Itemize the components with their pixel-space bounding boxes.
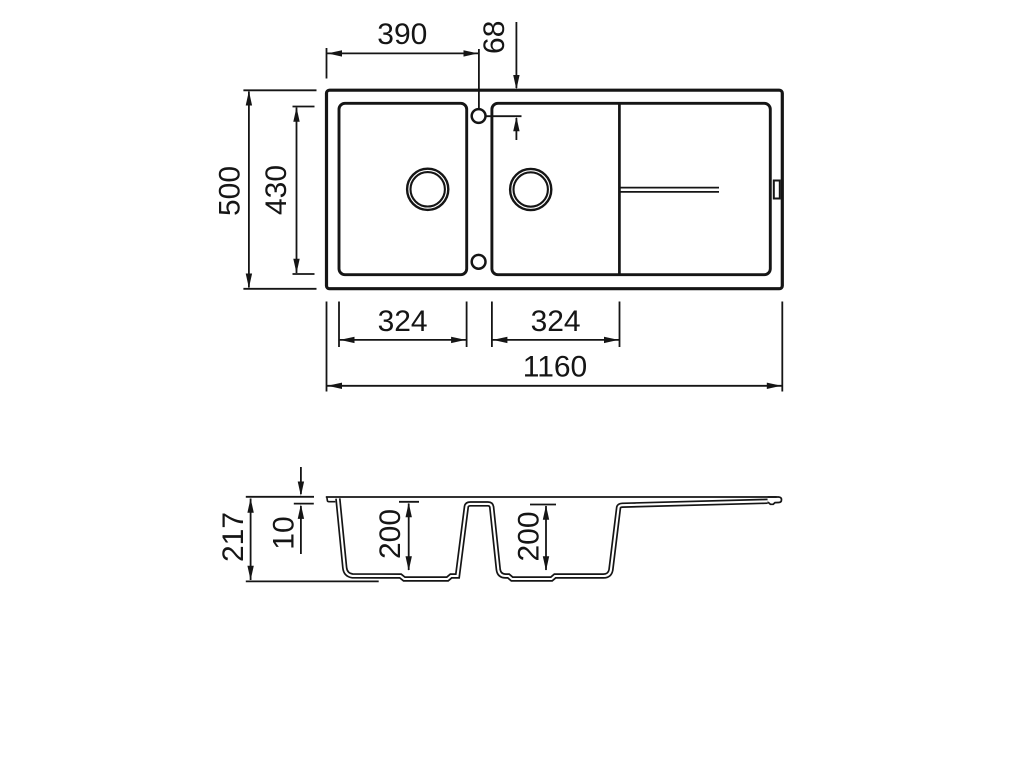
svg-text:68: 68 [478,21,511,54]
svg-text:324: 324 [378,305,428,338]
svg-text:10: 10 [267,516,300,549]
svg-text:200: 200 [512,511,545,561]
svg-text:430: 430 [260,165,293,215]
svg-text:324: 324 [531,305,581,338]
svg-text:200: 200 [374,509,407,559]
svg-text:1160: 1160 [523,351,588,384]
svg-text:500: 500 [213,166,246,216]
svg-text:217: 217 [217,512,250,562]
svg-text:390: 390 [377,18,427,51]
